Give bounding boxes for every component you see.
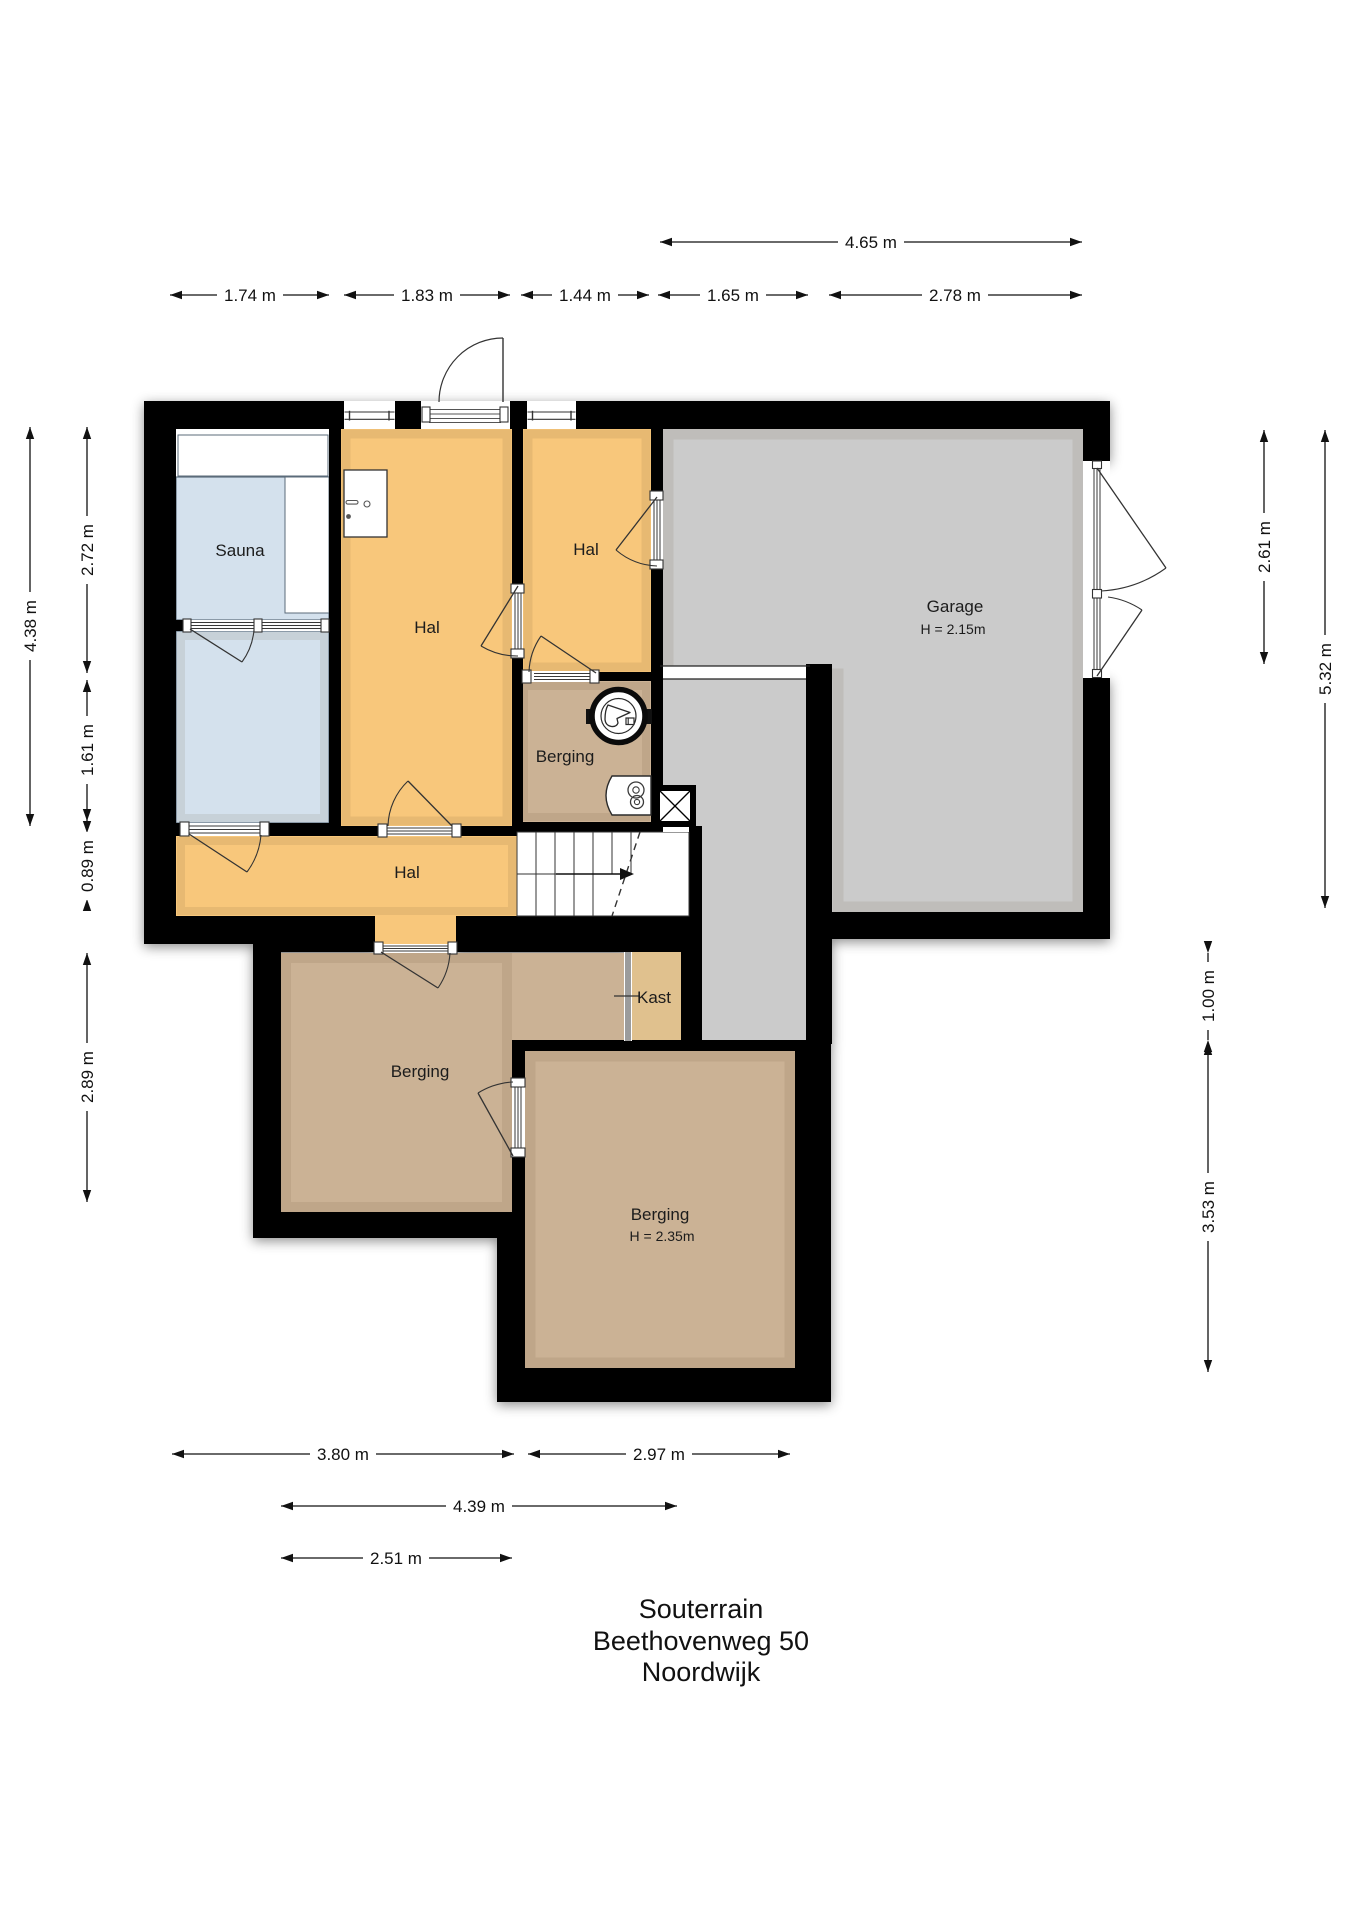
svg-text:0.89 m: 0.89 m (78, 840, 97, 892)
svg-text:2.78 m: 2.78 m (929, 286, 981, 305)
svg-text:4.65 m: 4.65 m (845, 233, 897, 252)
svg-text:1.61 m: 1.61 m (78, 724, 97, 776)
svg-text:Berging: Berging (536, 747, 595, 766)
svg-text:Berging: Berging (391, 1062, 450, 1081)
svg-text:2.97 m: 2.97 m (633, 1445, 685, 1464)
svg-text:2.51 m: 2.51 m (370, 1549, 422, 1568)
svg-text:Sauna: Sauna (215, 541, 265, 560)
svg-text:3.53 m: 3.53 m (1199, 1181, 1218, 1233)
svg-text:1.83 m: 1.83 m (401, 286, 453, 305)
svg-text:Berging: Berging (631, 1205, 690, 1224)
svg-text:H = 2.15m: H = 2.15m (921, 621, 986, 637)
svg-text:5.32 m: 5.32 m (1316, 643, 1335, 695)
svg-text:Beethovenweg 50: Beethovenweg 50 (593, 1626, 809, 1656)
svg-text:4.38 m: 4.38 m (21, 600, 40, 652)
svg-text:Garage: Garage (927, 597, 984, 616)
svg-text:2.72 m: 2.72 m (78, 524, 97, 576)
svg-text:Noordwijk: Noordwijk (642, 1657, 761, 1687)
svg-text:1.74 m: 1.74 m (224, 286, 276, 305)
svg-text:2.89 m: 2.89 m (78, 1051, 97, 1103)
svg-text:1.65 m: 1.65 m (707, 286, 759, 305)
svg-text:1.00 m: 1.00 m (1199, 970, 1218, 1022)
svg-text:Hal: Hal (414, 618, 440, 637)
svg-text:Hal: Hal (394, 863, 420, 882)
svg-text:4.39 m: 4.39 m (453, 1497, 505, 1516)
svg-text:3.80 m: 3.80 m (317, 1445, 369, 1464)
svg-text:2.61 m: 2.61 m (1255, 521, 1274, 573)
svg-text:Souterrain: Souterrain (639, 1594, 764, 1624)
svg-text:1.44 m: 1.44 m (559, 286, 611, 305)
svg-text:Kast: Kast (637, 988, 671, 1007)
svg-text:Hal: Hal (573, 540, 599, 559)
svg-text:H = 2.35m: H = 2.35m (630, 1228, 695, 1244)
